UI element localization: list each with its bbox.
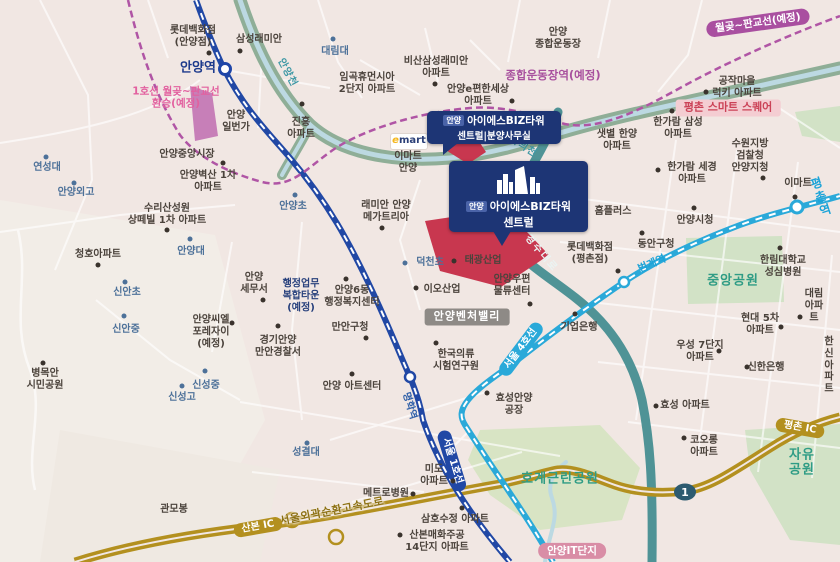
emart-logo: emart (390, 133, 428, 150)
brand-prefix-badge: 안양 (443, 115, 464, 126)
main-site-callout: 안양아이에스BIZ타워 센트럴 (449, 161, 588, 232)
office-callout-sub: 센트럴|분양사무실 (427, 128, 561, 142)
interchange-loop (329, 530, 343, 544)
route-1-shield: 1 (674, 484, 696, 501)
station-marker-pyeongchon (791, 201, 803, 213)
map-canvas[interactable]: 1 emart 롯데백화점 (안양점)삼성래미안안양역1호선 월곶~판교선 환승… (0, 0, 840, 562)
station-marker-beomgye (619, 277, 629, 287)
callout-pointer (493, 231, 511, 246)
brand-prefix-badge: 안양 (466, 201, 487, 212)
emart-logo-e: e (392, 135, 399, 146)
planned-station-area (190, 86, 218, 141)
office-callout-title: 안양아이에스BIZ타워 (427, 113, 561, 128)
map-base-graphics: 1 (0, 0, 840, 562)
callout-pointer (443, 143, 458, 155)
main-callout-title: 안양아이에스BIZ타워 (449, 198, 588, 214)
route-number: 1 (681, 486, 689, 499)
building-icon (495, 164, 543, 194)
office-callout-name: 아이에스BIZ타워 (467, 115, 544, 127)
emart-logo-mart: mart (399, 135, 426, 146)
central-park-area (686, 236, 784, 304)
main-callout-name: 아이에스BIZ타워 (490, 200, 571, 213)
station-marker-myeonghak (405, 372, 415, 382)
sales-office-callout: 안양아이에스BIZ타워 센트럴|분양사무실 (427, 111, 561, 144)
main-callout-sub: 센트럴 (449, 214, 588, 230)
station-marker-anyang (220, 64, 231, 75)
